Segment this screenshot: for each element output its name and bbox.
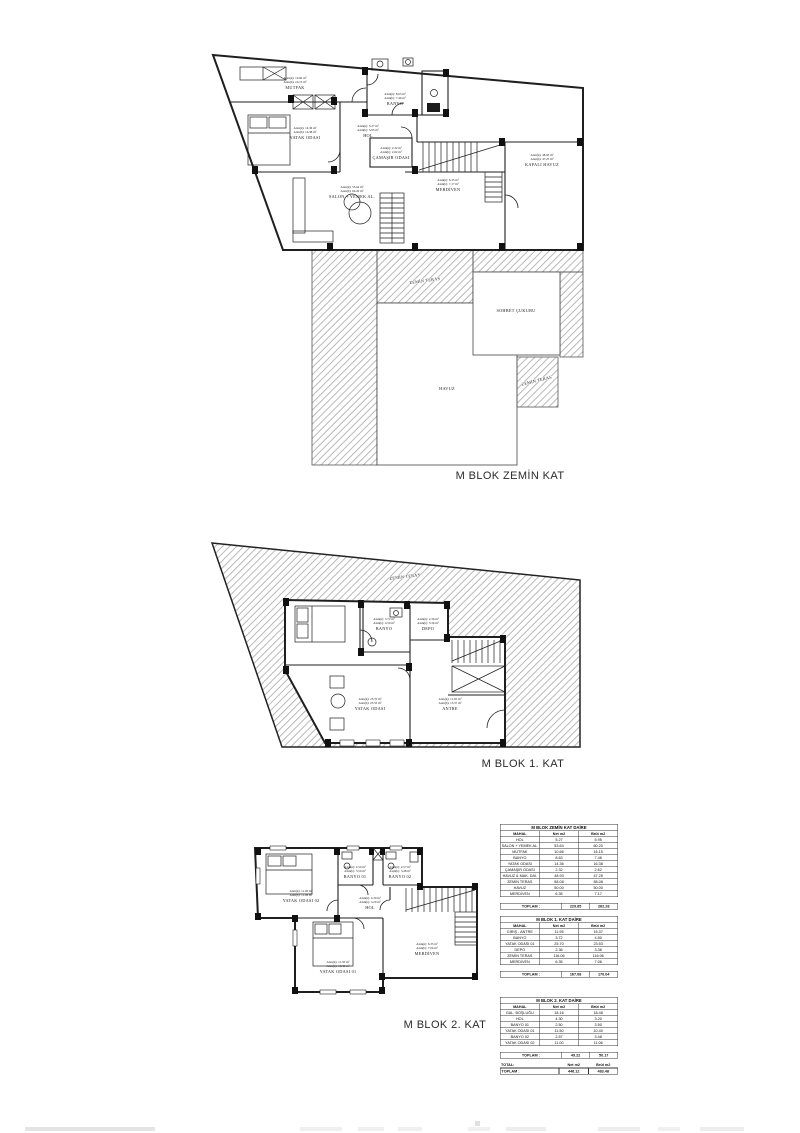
table-cell: 50.17 (590, 1052, 618, 1058)
zemin-terrace-area (312, 250, 583, 465)
grand-toplam-label: TOPLAM : (500, 1068, 559, 1075)
room-name-mutfak: MUTFAK (285, 85, 305, 90)
room-name-banyo: BANYO (387, 101, 404, 106)
room-name-banyo: BANYO (376, 626, 393, 631)
room-name-depo: DEPO (422, 626, 434, 631)
table-total: TOPLAM :229.85262.28 (500, 903, 618, 910)
room-area-brut: Alan(b): 16.38 m² (294, 130, 317, 134)
table-cell: SALON + YEMEK AL. (500, 843, 539, 849)
room-area-brut: Alan(b): 5.95 m² (357, 128, 378, 132)
area-tables-column: M BLOK ZEMİN KAT DAİREMAHALNet m2Brüt m2… (500, 824, 630, 1133)
room-name-kapali-havuz: KAPALI HAVUZ (525, 162, 559, 167)
table-cell: 6.35 (539, 891, 578, 897)
grand-net-value: 446.12 (559, 1068, 589, 1075)
table-total: TOPLAM :49.2250.17 (500, 1052, 618, 1059)
floor-plan-sheet: Alan(n): 10.66 m² Alan(b): 16.15 m² MUTF… (0, 0, 800, 1133)
table-cell: 170.04 (590, 971, 618, 977)
table-cell: TOPLAM : (500, 1052, 561, 1058)
room-area-brut: Alan(b): 47.25 m² (531, 157, 554, 161)
label-sohbet-cukuru: SOHBET ÇUKURU (496, 308, 536, 313)
room-name-yatak-odasi-02: YATAK ODASI 02 (283, 898, 320, 903)
grand-total-row: TOPLAM : 446.12 483.48 (500, 1068, 618, 1075)
table-cell: 6.35 (539, 959, 578, 965)
table-cell: GAL. BOŞLUĞU (500, 1010, 539, 1016)
kat2-table-block: M BLOK 2. KAT DAİREMAHALNet m2Brüt m2GAL… (500, 997, 618, 1059)
kat2-plan: Alan(n): 11.00 m² Alan(b): 11.06 m² YATA… (230, 830, 510, 1040)
room-area-brut: Alan(b): 16.15 m² (284, 80, 307, 84)
shaft-fill (427, 103, 440, 112)
table-cell: 167.08 (562, 971, 590, 977)
table-cell: ÇAMAŞIR ODASI (500, 867, 539, 873)
room-area-brut: Alan(b): 4.50 m² (373, 621, 394, 625)
sohbet-cukuru-outline (473, 272, 560, 355)
room-name-merdiven: MERDİVEN (415, 951, 440, 956)
zemin-kat-plan: Alan(n): 10.66 m² Alan(b): 16.15 m² MUTF… (200, 45, 600, 490)
zemin-kat-table-block: M BLOK ZEMİN KAT DAİREMAHALNet m2Brüt m2… (500, 824, 618, 910)
building-outline (255, 848, 477, 992)
table-total: TOPLAM :167.08170.04 (500, 971, 618, 978)
room-name-antre: ANTRE (442, 706, 458, 711)
table-cell: 7.06 (579, 959, 618, 965)
room-area-brut: Alan(b): 10.40 m² (327, 964, 350, 968)
grand-net-header: Net m2 (559, 1062, 589, 1068)
room-area-brut: Alan(b): 23.53 m² (359, 701, 382, 705)
kat1-title: M BLOK 1. KAT (450, 758, 596, 770)
kat2-title: M BLOK 2. KAT (375, 1019, 515, 1031)
table-cell: YATAK ODASI 01 (500, 1028, 539, 1034)
room-area-brut: Alan(b): 3.50 m² (344, 869, 365, 873)
room-name-banyo-02: BANYO 02 (389, 874, 412, 879)
room-area-brut: Alan(b): 15.37 m² (439, 701, 462, 705)
windows (340, 740, 404, 746)
table-cell: HAVUZ & MAK. DAİ. (500, 873, 539, 879)
table-cell: MERDİVEN (500, 959, 539, 965)
zemin-kat-title: M BLOK ZEMİN KAT (440, 470, 580, 482)
kat1-plan: Alan(n): 3.72 m² Alan(b): 4.50 m² BANYO … (200, 530, 600, 780)
room-name-camasir-odasi: ÇAMAŞIR ODASI (372, 155, 409, 160)
grand-total-table: TOTAL: Net m2 Brüt m2 TOPLAM : 446.12 48… (500, 1062, 618, 1075)
grand-brut-header: Brüt m2 (589, 1062, 619, 1068)
kat2-building (255, 846, 478, 994)
room-area-brut: Alan(b): 7.17 m² (437, 182, 458, 186)
grand-total-label: TOTAL: (500, 1062, 559, 1068)
room-name-yatak-odasi: YATAK ODASI (290, 135, 321, 140)
bathroom-fixtures (372, 58, 413, 70)
room-area-brut: Alan(b): 3.20 m² (359, 900, 380, 904)
room-area-brut: Alan(b): 60.20 m² (341, 189, 364, 193)
table-cell: TOPLAM : (500, 971, 561, 977)
room-area-brut: Alan(b): 2.62 m² (380, 150, 401, 154)
area-table: M BLOK 2. KAT DAİREMAHALNet m2Brüt m2GAL… (500, 997, 618, 1046)
room-name-salon: SALON + YEMEK AL. (329, 194, 375, 199)
table-cell: 229.85 (562, 903, 590, 909)
room-area-brut: Alan(b): 7.46 m² (384, 96, 405, 100)
room-name-merdiven: MERDİVEN (436, 187, 461, 192)
room-name-yatak-odasi: YATAK ODASI (355, 706, 386, 711)
table-cell: YATAK ODASI 01 (500, 941, 539, 947)
table-cell: TOPLAM : (500, 903, 561, 909)
room-area-brut: Alan(b): 3.36 m² (417, 621, 438, 625)
table-cell: 49.22 (562, 1052, 590, 1058)
kat1-table-block: M BLOK 1. KAT DAİREMAHALNet m2Brüt m2GİR… (500, 916, 618, 978)
label-havuz: HAVUZ (439, 386, 455, 391)
area-table: M BLOK ZEMİN KAT DAİREMAHALNet m2Brüt m2… (500, 824, 618, 897)
table-cell: YATAK ODASI 02 (500, 1040, 539, 1046)
table-cell: 7.17 (579, 891, 618, 897)
room-area-brut: Alan(b): 3.48 m² (389, 869, 410, 873)
grand-brut-value: 483.48 (589, 1068, 619, 1075)
room-name-yatak-odasi-01: YATAK ODASI 01 (320, 969, 357, 974)
room-area-brut: Alan(b): 11.06 m² (290, 893, 313, 897)
room-name-hol: HOL (363, 133, 373, 138)
table-cell: 262.28 (590, 903, 618, 909)
table-cell: MERDİVEN (500, 891, 539, 897)
table-cell: 11.06 (579, 1040, 618, 1046)
room-name-banyo-01: BANYO 01 (344, 874, 367, 879)
table-cell: 11.00 (539, 1040, 578, 1046)
room-name-hol: HOL (365, 905, 375, 910)
area-table: M BLOK 1. KAT DAİREMAHALNet m2Brüt m2GİR… (500, 916, 618, 965)
room-area-brut: Alan(b): 7.06 m² (416, 946, 437, 950)
